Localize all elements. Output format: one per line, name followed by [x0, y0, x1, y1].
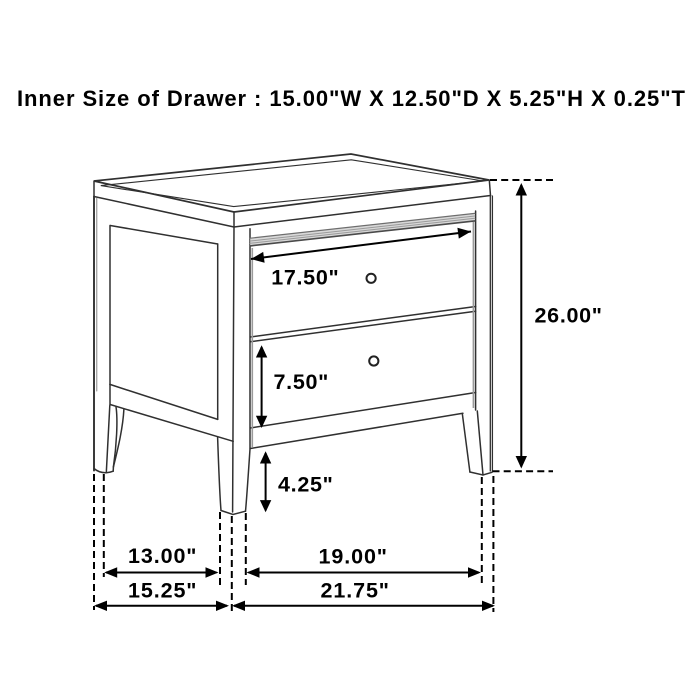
svg-text:Inner Size of Drawer : 15.00"W: Inner Size of Drawer : 15.00"W X 12.50"D… [17, 86, 686, 111]
svg-text:4.25": 4.25" [278, 473, 334, 497]
svg-text:7.50": 7.50" [274, 370, 330, 394]
svg-text:17.50": 17.50" [271, 265, 339, 289]
svg-text:19.00": 19.00" [319, 545, 388, 569]
svg-text:26.00": 26.00" [535, 304, 603, 328]
svg-text:21.75": 21.75" [321, 579, 390, 603]
svg-text:15.25": 15.25" [128, 579, 197, 603]
svg-text:13.00": 13.00" [128, 544, 197, 568]
